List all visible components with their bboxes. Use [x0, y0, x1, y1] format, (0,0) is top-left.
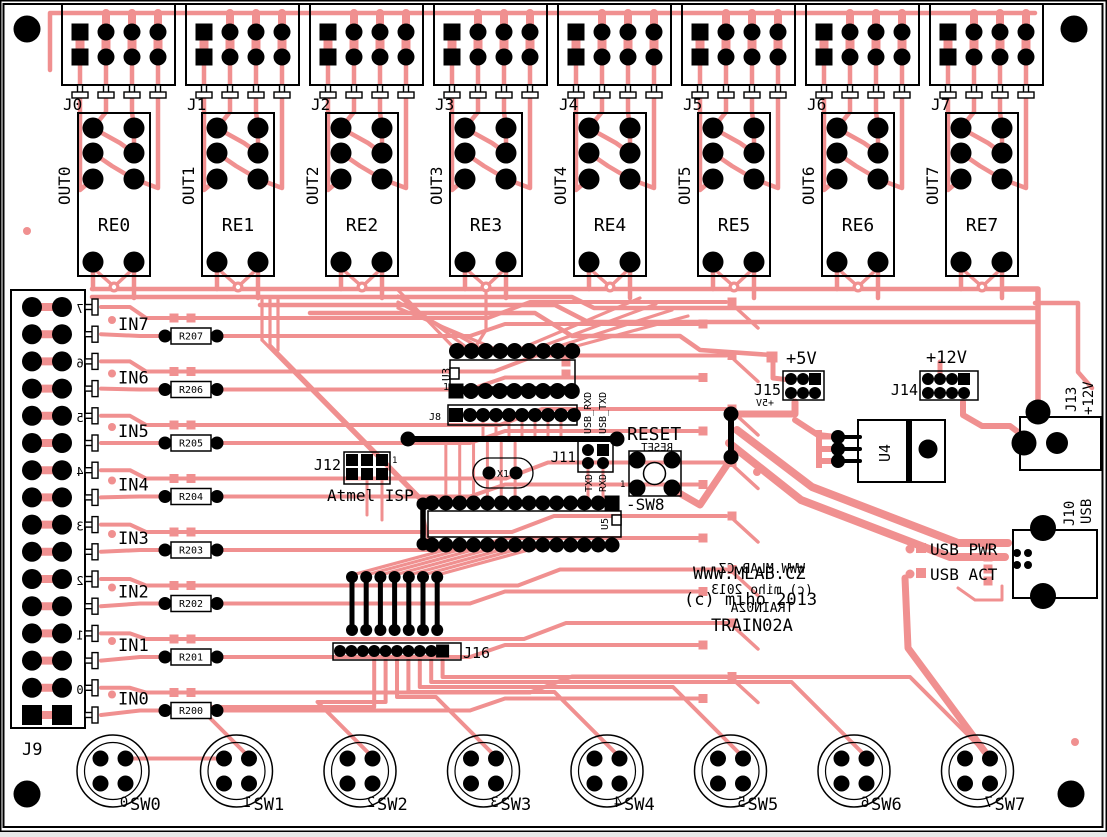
switch-SW1: SW1: [201, 735, 285, 815]
j10-shield-pad: [1030, 515, 1056, 541]
relay-label: RE2: [346, 215, 379, 236]
crystal-label: X1: [497, 469, 509, 480]
resistor-pad: [211, 330, 224, 343]
board-name-label: TRAIN02A: [711, 616, 793, 636]
mcu-fan: [529, 304, 656, 351]
atmel-isp-label: Atmel ISP: [327, 486, 414, 505]
connector-pad: [22, 351, 42, 371]
j8-pad: [541, 408, 555, 422]
via-hole: [112, 285, 116, 289]
jumper-end: [417, 498, 430, 511]
jumper-end: [401, 432, 416, 447]
switch-SW0: SW0: [77, 735, 161, 815]
square-pad: [816, 24, 833, 41]
pad: [522, 49, 539, 66]
pad: [274, 24, 291, 41]
switch-fan-trace: [199, 660, 374, 757]
u5-pad: [563, 496, 578, 511]
u5-pad: [438, 538, 453, 553]
pad: [346, 49, 363, 66]
j11-pin1-pad: [597, 444, 609, 456]
copper-trace: [734, 520, 758, 542]
j8-pad: [489, 408, 503, 422]
usb-pwr-led-pad: [916, 543, 926, 553]
input-label: IN2: [118, 583, 149, 603]
resistor-label: R204: [179, 492, 203, 503]
relay-pad: [372, 252, 393, 273]
square-pad: [196, 49, 213, 66]
switch-label: SW6: [871, 795, 902, 815]
j13-pad: [1046, 432, 1068, 454]
j16-pad: [391, 645, 403, 657]
relay-pad: [124, 252, 145, 273]
switch-label: SW0: [130, 795, 161, 815]
relay-pad: [496, 118, 517, 139]
pad: [842, 49, 859, 66]
smd-pad: [187, 367, 196, 376]
j14-pad: [922, 373, 934, 385]
j14-pad: [922, 387, 934, 399]
relay-pad: [248, 118, 269, 139]
smd-pad: [699, 641, 708, 650]
u5-notch: [612, 515, 621, 525]
switch-label: SW1: [254, 795, 285, 815]
relay-label: RE4: [594, 215, 627, 236]
j15-pad: [785, 387, 797, 399]
mirrored-pin-digit: 6: [76, 356, 83, 370]
switch-pad: [612, 751, 628, 767]
usb-pwr-label: USB PWR: [930, 540, 998, 559]
sw8-label: -SW8: [626, 495, 665, 514]
relay-pad: [951, 252, 972, 273]
resistor-pad: [211, 383, 224, 396]
mirrored-pin-digit: 4: [76, 465, 83, 479]
j12-pad: [346, 454, 358, 466]
connector-pad: [52, 705, 72, 725]
j14-pad: [934, 373, 946, 385]
resistor-label: R201: [179, 653, 203, 664]
pad: [718, 24, 735, 41]
pad: [496, 24, 513, 41]
via-hole: [980, 285, 984, 289]
via-dot: [108, 530, 116, 538]
terminal-pin: [150, 92, 166, 98]
j10-shield-pad: [1030, 583, 1056, 609]
switch-pad: [710, 751, 726, 767]
copper-trace: [218, 645, 698, 657]
u5-pad: [452, 496, 467, 511]
output-label: OUT5: [675, 166, 694, 205]
resistor-label: R202: [179, 599, 203, 610]
j8-pad: [554, 408, 568, 422]
u5-pad: [521, 538, 536, 553]
square-pad: [320, 24, 337, 41]
mirrored-pin-digit: 7: [76, 302, 83, 316]
jumper-end: [417, 538, 430, 551]
pcb-screenshot: 765432101RESET1101234567+5VWWW.MLAB.CZ(c…: [0, 0, 1107, 832]
relay-pad: [124, 118, 145, 139]
connector-pin: [92, 299, 98, 315]
connector-pad: [52, 542, 72, 562]
plus5v-label: +5V: [786, 349, 817, 369]
connector-pad: [22, 460, 42, 480]
switch-pad: [834, 776, 850, 792]
website-label: WWW.MLAB.CZ: [693, 564, 806, 584]
u3-pad: [507, 343, 523, 359]
pad: [248, 24, 265, 41]
via-hole: [236, 285, 240, 289]
j11-label: J11: [551, 450, 576, 466]
j8-pad: [528, 408, 542, 422]
pad: [98, 24, 115, 41]
pad: [470, 49, 487, 66]
relay-pad: [248, 169, 269, 190]
pad: [894, 24, 911, 41]
j14-pin1-pad: [958, 373, 970, 385]
sw8-button: [644, 463, 666, 485]
terminal-pin: [398, 92, 414, 98]
square-pad: [72, 24, 89, 41]
connector-pad: [22, 406, 42, 426]
switch-pad: [710, 776, 726, 792]
via-hole: [360, 285, 364, 289]
switch-pad: [834, 751, 850, 767]
u5-pad: [466, 496, 481, 511]
j16-pad: [380, 645, 392, 657]
switch-pad: [365, 751, 381, 767]
smd-pad: [562, 370, 571, 379]
terminal-pin: [98, 92, 114, 98]
jumper-end: [403, 624, 415, 636]
connector-pad: [52, 351, 72, 371]
square-pad: [444, 24, 461, 41]
u3-pad: [521, 383, 537, 399]
smd-pad: [187, 688, 196, 697]
relay-pad: [744, 252, 765, 273]
resistor-label: R207: [179, 332, 203, 343]
pad: [646, 49, 663, 66]
jumper-end: [610, 432, 625, 447]
u3-pin1-pad: [449, 384, 464, 399]
u3-pad: [549, 383, 565, 399]
u5-pad: [466, 538, 481, 553]
connector-pad: [22, 515, 42, 535]
pad: [1018, 24, 1035, 41]
u5-pad: [438, 496, 453, 511]
switch-pad: [735, 751, 751, 767]
via-dot: [108, 637, 116, 645]
switch-pad: [241, 751, 257, 767]
pad: [346, 24, 363, 41]
connector-pin: [92, 571, 98, 587]
connector-pad: [22, 596, 42, 616]
relay-pad: [496, 169, 517, 190]
j13-pad: [1026, 400, 1051, 425]
smd-pad: [187, 581, 196, 590]
terminal-pin: [1018, 92, 1034, 98]
j13-label: J13: [1064, 387, 1080, 412]
j10-signal-pad: [1024, 549, 1032, 557]
pad: [842, 24, 859, 41]
smd-pad: [170, 314, 179, 323]
connector-pad: [52, 651, 72, 671]
copper-trace: [101, 657, 162, 661]
mirrored-pin-digit: 0: [76, 683, 83, 697]
relay-pad: [703, 118, 724, 139]
pad: [992, 49, 1009, 66]
resistor-label: R203: [179, 546, 203, 557]
pad: [470, 24, 487, 41]
pad: [770, 24, 787, 41]
j12-pad: [376, 454, 388, 466]
connector-pad: [22, 651, 42, 671]
usb-act-led-pad: [916, 568, 926, 578]
via-hole: [732, 285, 736, 289]
pad: [868, 24, 885, 41]
smd-pad: [562, 358, 571, 367]
terminal-pin: [320, 92, 336, 98]
relay-pad: [83, 118, 104, 139]
smd-pad: [170, 635, 179, 644]
switch-pad: [735, 776, 751, 792]
u3-pad: [492, 343, 508, 359]
terminal-pin: [72, 92, 88, 98]
j16-pad: [402, 645, 414, 657]
relay-pad: [744, 143, 765, 164]
terminal-pin: [992, 92, 1008, 98]
switch-pad: [957, 776, 973, 792]
switch-outline: [826, 743, 883, 800]
u3-label: U3: [440, 368, 453, 381]
relay-label: RE7: [966, 215, 999, 236]
switch-outline: [702, 743, 759, 800]
power-feed: [1035, 303, 1092, 388]
relay-pad: [992, 118, 1013, 139]
relay-pad: [827, 143, 848, 164]
connector-pad: [52, 623, 72, 643]
plus5v-mirror-label: +5V: [756, 398, 774, 409]
pad: [966, 49, 983, 66]
usb-act-label: USB ACT: [930, 565, 998, 584]
relay-pad: [579, 143, 600, 164]
connector-pad: [22, 324, 42, 344]
jumper-end: [389, 624, 401, 636]
jumper-end: [417, 624, 429, 636]
pad: [124, 49, 141, 66]
via-dot: [108, 370, 116, 378]
smd-pad: [699, 427, 708, 436]
resistor-pad: [159, 651, 172, 664]
switch-pad: [612, 776, 628, 792]
reset-label: RESET: [627, 424, 681, 445]
j15-pin1-pad: [809, 373, 821, 385]
connector-pad: [52, 569, 72, 589]
terminal-pin: [522, 92, 538, 98]
j8-pad: [502, 408, 516, 422]
square-pad: [196, 24, 213, 41]
switch-pad: [859, 751, 875, 767]
relay-pad: [248, 143, 269, 164]
pad: [496, 49, 513, 66]
terminal-pin: [124, 92, 140, 98]
input-label: IN7: [118, 315, 149, 335]
pad: [398, 49, 415, 66]
u5-pad: [508, 496, 523, 511]
u5-pad: [494, 538, 509, 553]
relay-pad: [703, 143, 724, 164]
smd-pad: [170, 421, 179, 430]
j14-pad: [946, 387, 958, 399]
switch-pad: [982, 776, 998, 792]
pad: [248, 49, 265, 66]
via-dot: [108, 316, 116, 324]
j14-pad: [946, 373, 958, 385]
txd-label: TXD: [584, 474, 595, 492]
j16-pad: [414, 645, 426, 657]
j12-pad: [346, 468, 358, 480]
u4-pad: [831, 442, 845, 456]
resistor-pad: [211, 651, 224, 664]
connector-pad: [52, 515, 72, 535]
j10-signal-pad: [1013, 561, 1021, 569]
mirrored-pin-digit: 3: [76, 520, 83, 534]
pad: [594, 24, 611, 41]
u5-pad: [535, 538, 550, 553]
jumper-end: [724, 407, 739, 422]
j8-pad: [463, 408, 477, 422]
resistor-pad: [159, 383, 172, 396]
u4-pad: [831, 430, 845, 444]
relay-pad: [248, 252, 269, 273]
pad: [274, 49, 291, 66]
pcb-board-drawing: 765432101RESET1101234567+5VWWW.MLAB.CZ(c…: [0, 0, 1107, 832]
pad: [992, 24, 1009, 41]
connector-pad: [52, 379, 72, 399]
smd-pad: [699, 534, 708, 543]
switch-outline: [85, 743, 142, 800]
square-pad: [940, 24, 957, 41]
pad: [372, 24, 389, 41]
relay-pad: [579, 252, 600, 273]
connector-pin: [92, 381, 98, 397]
relay-label: RE1: [222, 215, 255, 236]
usb-txd-label: USB_TXD: [598, 392, 609, 434]
u4-pad: [831, 454, 845, 468]
via-dot: [108, 423, 116, 431]
switch-outline: [579, 743, 636, 800]
resistor-pad: [211, 597, 224, 610]
relay-pad: [744, 118, 765, 139]
rxd-label: RXD: [598, 474, 609, 492]
u5-pad: [563, 538, 578, 553]
relay-pad: [455, 143, 476, 164]
relay-pad: [455, 118, 476, 139]
relay-label: RE6: [842, 215, 875, 236]
smd-pin: [816, 442, 822, 456]
resistor-pad: [159, 704, 172, 717]
pad: [646, 24, 663, 41]
j10-signal-pad: [1013, 549, 1021, 557]
smd-pad: [170, 367, 179, 376]
smd-pad: [187, 528, 196, 537]
connector-pad: [22, 542, 42, 562]
relay-pad: [83, 143, 104, 164]
connector-pad: [22, 678, 42, 698]
terminal-pin: [196, 92, 212, 98]
mirrored-pin-digit: 5: [76, 411, 83, 425]
relay-pad: [992, 169, 1013, 190]
u3-pad: [477, 383, 493, 399]
smd-pad: [170, 474, 179, 483]
switch-pad: [340, 776, 356, 792]
u5-pad: [535, 496, 550, 511]
relay-pad: [455, 252, 476, 273]
square-pad: [444, 49, 461, 66]
relay-pad: [868, 169, 889, 190]
terminal-pin: [816, 92, 832, 98]
copyright-label: (c) miho 2013: [684, 590, 817, 610]
jumper-end: [389, 571, 401, 583]
relay-pad: [124, 169, 145, 190]
relay-pad: [992, 143, 1013, 164]
relay-label: RE5: [718, 215, 751, 236]
relay-pad: [827, 169, 848, 190]
wide-trace: [963, 402, 1026, 438]
switch-label: SW4: [624, 795, 655, 815]
resistor-pad: [211, 437, 224, 450]
pad: [597, 457, 609, 469]
output-label: OUT4: [551, 166, 570, 205]
terminal-pin: [346, 92, 362, 98]
u3-pad: [506, 383, 522, 399]
jumper-end: [360, 571, 372, 583]
j12-pad: [361, 468, 373, 480]
resistor-pad: [159, 437, 172, 450]
connector-pad: [22, 487, 42, 507]
smd-pin: [816, 430, 822, 444]
switch-outline: [455, 743, 512, 800]
input-connector-label: J9: [22, 740, 42, 760]
connector-pad: [22, 705, 42, 725]
relay-pad: [331, 169, 352, 190]
input-label: IN4: [118, 476, 149, 496]
copper-trace: [101, 389, 162, 390]
via-dot: [1071, 738, 1079, 746]
u3-pad: [449, 343, 465, 359]
relay-pad: [207, 118, 228, 139]
u5-pad: [549, 538, 564, 553]
sw8-pad: [629, 452, 646, 469]
relay-pad: [331, 118, 352, 139]
u4-label: U4: [876, 444, 894, 462]
switch-pad: [463, 776, 479, 792]
via-dot: [108, 691, 116, 699]
j15-pad: [785, 373, 797, 385]
smd-pad: [699, 480, 708, 489]
relay-pad: [496, 252, 517, 273]
pad: [398, 24, 415, 41]
resistor-pad: [159, 490, 172, 503]
j10-signal-pad: [1024, 561, 1032, 569]
resistor-label: R205: [179, 439, 203, 450]
input-label: IN0: [118, 690, 149, 710]
terminal-pin: [770, 92, 786, 98]
relay-pad: [868, 143, 889, 164]
connector-pad: [52, 324, 72, 344]
u3-pad: [564, 383, 580, 399]
j8-pad: [476, 408, 490, 422]
j8-pad: [567, 408, 581, 422]
